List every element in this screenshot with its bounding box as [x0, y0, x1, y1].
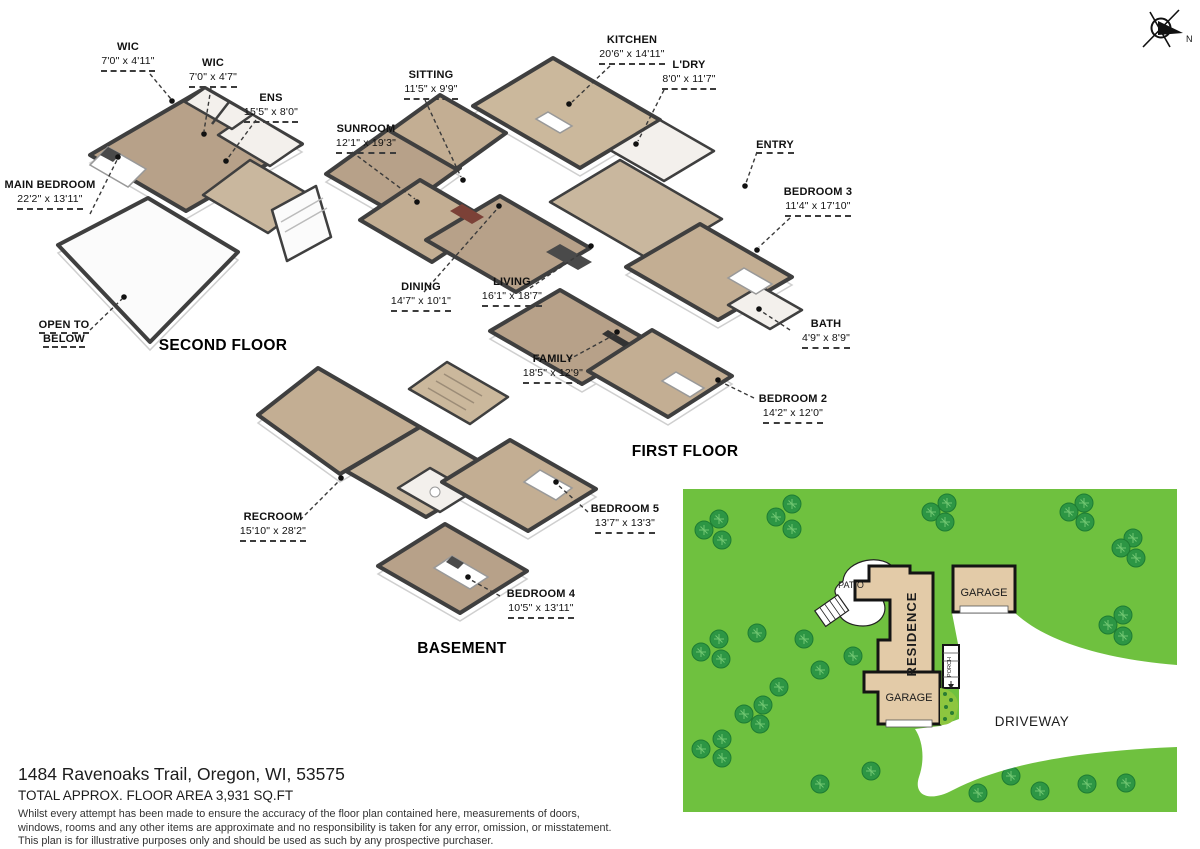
room-label-main-bedroom: MAIN BEDROOM22'2" x 13'11" — [2, 178, 98, 210]
leader-dot-recroom — [338, 475, 344, 481]
room-label-sunroom: SUNROOM12'1" x 19'3" — [313, 122, 419, 154]
leader-line-entry — [746, 152, 757, 183]
room-label-wic-2: WIC7'0" x 4'7" — [163, 56, 263, 88]
room-label-ldry: L'DRY8'0" x 11'7" — [641, 58, 737, 90]
leader-dot-bedroom-5 — [553, 479, 559, 485]
leader-dot-wic-1 — [169, 98, 175, 104]
room-label-entry: ENTRY — [743, 138, 807, 152]
floor-plan-page: { "compass": {"label": "N"}, "floors": [… — [0, 0, 1200, 848]
garage-lower-door — [886, 720, 932, 727]
garage-upper-label: GARAGE — [960, 587, 1007, 599]
room-label-bedroom-5: BEDROOM 513'7" x 13'3" — [569, 502, 681, 534]
leader-dot-family — [614, 329, 620, 335]
garage-lower-label: GARAGE — [885, 692, 932, 704]
basement-title: BASEMENT — [417, 640, 506, 658]
second-floor-title: SECOND FLOOR — [159, 337, 287, 355]
north-label: N — [1186, 34, 1193, 44]
room-label-family: FAMILY18'5" x 12'9" — [501, 352, 605, 384]
leader-dot-kitchen — [566, 101, 572, 107]
room-label-living: LIVING16'1" x 18'7" — [460, 275, 564, 307]
porch-label: PORCH — [947, 657, 953, 677]
driveway-label: DRIVEWAY — [995, 714, 1070, 729]
room-label-dining: DINING14'7" x 10'1" — [369, 280, 473, 312]
property-address: 1484 Ravenoaks Trail, Oregon, WI, 53575 — [18, 764, 1028, 785]
patio-label: PATIO — [838, 580, 864, 590]
room-label-ens: ENS15'5" x 8'0" — [221, 91, 321, 123]
toilet-icon — [430, 487, 440, 497]
stairs-floor — [409, 362, 508, 424]
disclaimer-text: Whilst every attempt has been made to en… — [18, 808, 1028, 849]
leader-dot-bath — [756, 306, 762, 312]
leader-dot-ldry — [633, 141, 639, 147]
room-label-recroom: RECROOM15'10" x 28'2" — [218, 510, 328, 542]
leader-dot-bedroom-4 — [465, 574, 471, 580]
north-arrow: N — [1130, 2, 1200, 57]
room-label-bath: BATH4'9" x 8'9" — [776, 317, 876, 349]
footer: 1484 Ravenoaks Trail, Oregon, WI, 53575 … — [18, 764, 1028, 849]
second-floor-plan — [58, 88, 331, 350]
total-floor-area: TOTAL APPROX. FLOOR AREA 3,931 SQ.FT — [18, 788, 1028, 803]
room-label-bedroom-4: BEDROOM 410'5" x 13'11" — [485, 587, 597, 619]
first-floor-title: FIRST FLOOR — [632, 443, 739, 461]
disclaimer-line: Whilst every attempt has been made to en… — [18, 808, 1028, 822]
disclaimer-line: windows, rooms and any other items are a… — [18, 822, 1028, 836]
leader-dot-main-bedroom — [115, 154, 121, 160]
leader-dot-living — [588, 243, 594, 249]
leader-line-bedroom-3 — [759, 218, 790, 247]
leader-dot-open-to-below — [121, 294, 127, 300]
disclaimer-line: This plan is for illustrative purposes o… — [18, 835, 1028, 849]
leader-dot-bedroom-3 — [754, 247, 760, 253]
residence-label: RESIDENCE — [904, 592, 919, 677]
room-label-bedroom-3: BEDROOM 311'4" x 17'10" — [760, 185, 876, 217]
room-label-bedroom-2: BEDROOM 214'2" x 12'0" — [735, 392, 851, 424]
leader-dot-wic-2 — [201, 131, 207, 137]
garage-upper-door — [960, 606, 1008, 613]
room-label-sitting: SITTING11'5" x 9'9" — [381, 68, 481, 100]
leader-dot-entry — [742, 183, 748, 189]
leader-dot-bedroom-2 — [715, 377, 721, 383]
leader-dot-sitting — [460, 177, 466, 183]
leader-dot-sunroom — [414, 199, 420, 205]
leader-dot-dining — [496, 203, 502, 209]
north-arrow-pointer — [1158, 21, 1183, 35]
room-label-open-to-below: OPEN TO BELOW — [21, 318, 107, 347]
leader-dot-ens — [223, 158, 229, 164]
basement-plan — [258, 362, 596, 621]
